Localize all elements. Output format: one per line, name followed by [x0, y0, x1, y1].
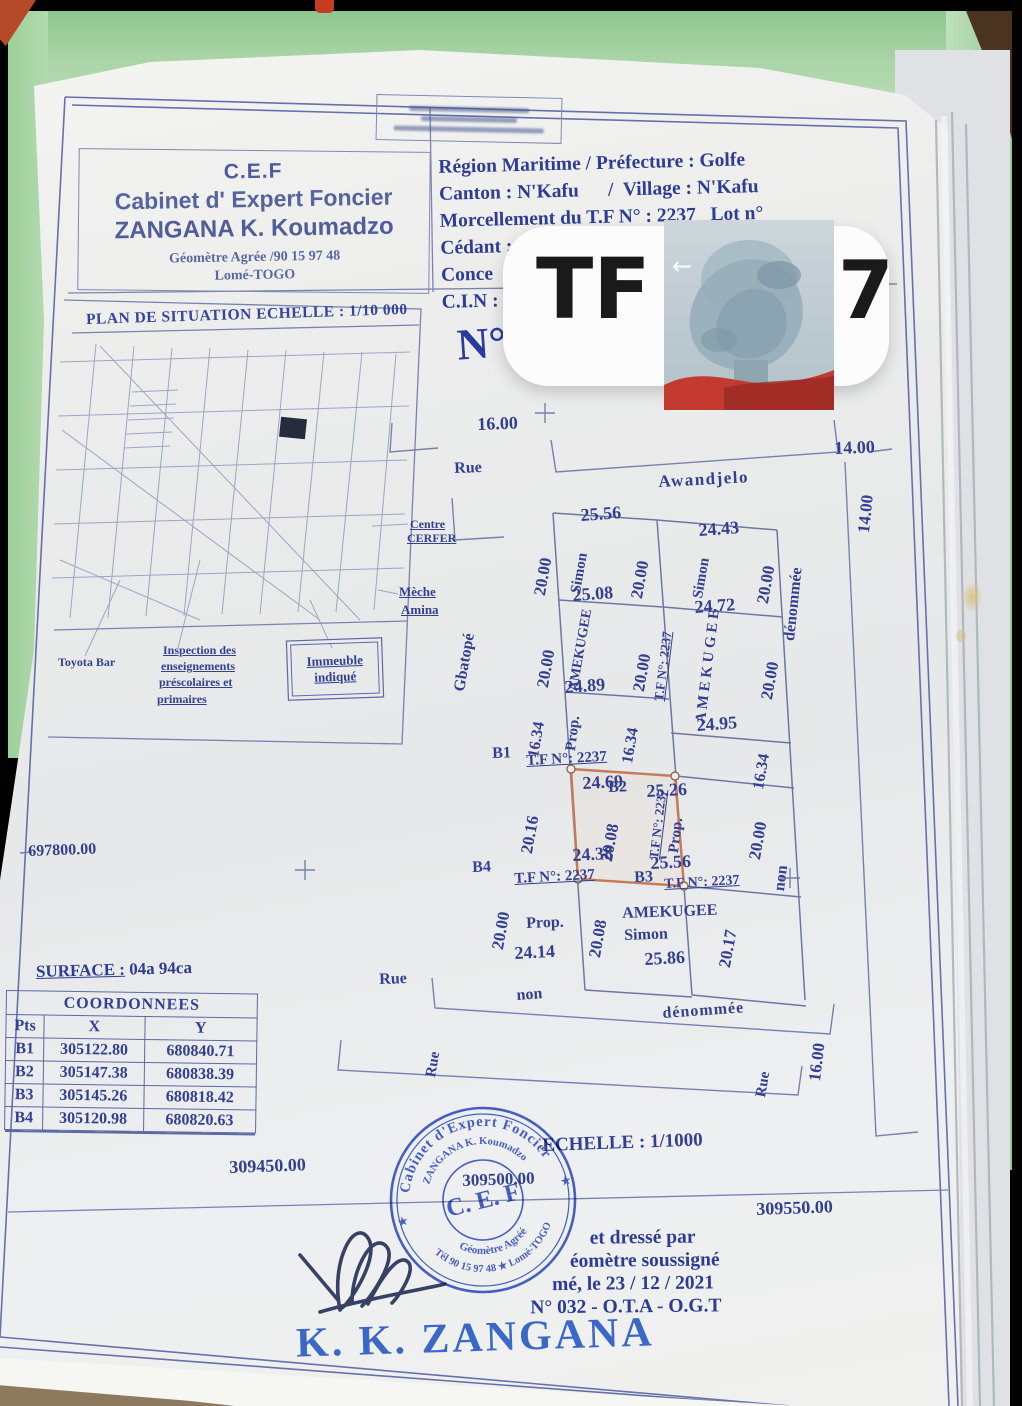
photo-border-left: [0, 0, 8, 782]
back-arrow-icon[interactable]: ←: [672, 252, 692, 280]
avatar-photo: [664, 220, 834, 410]
photographed-survey-document: C.E.F Cabinet d' Expert Foncier ZANGANA …: [0, 0, 1022, 1406]
tf-number-suffix: 7: [838, 244, 894, 337]
tf-number-prefix: TF: [536, 240, 651, 338]
red-top-mark: [315, 0, 334, 13]
signature-scribble: [0, 0, 1022, 1406]
photo-border-right: [1012, 0, 1022, 1406]
photo-border-top: [0, 0, 1022, 11]
